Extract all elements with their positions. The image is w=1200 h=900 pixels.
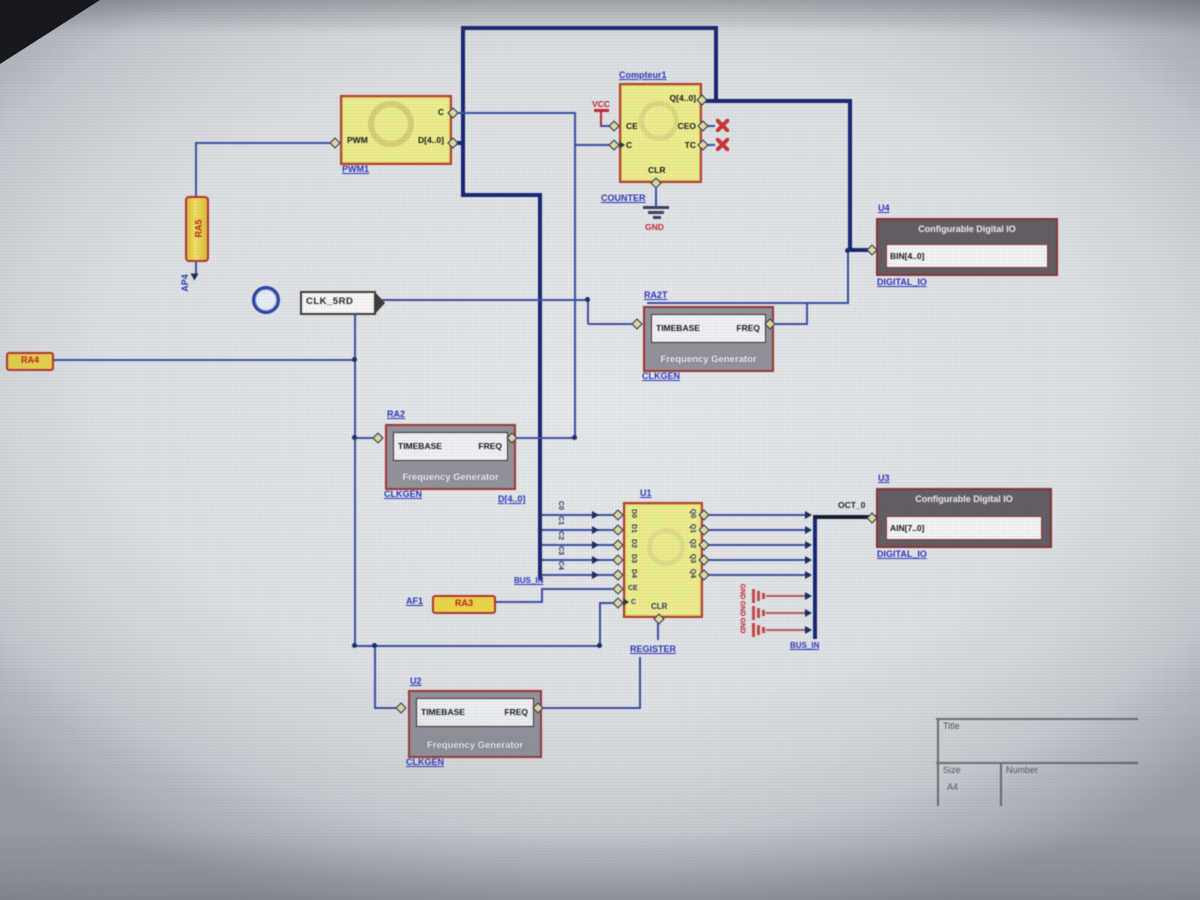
wire-segment [599,602,601,646]
pin-connector [631,318,642,329]
arrowhead [592,511,599,519]
freqgen-field: TIMEBASE FREQ [651,314,766,343]
gnd-symbol [752,589,755,603]
pin-label: TC [685,140,696,150]
wire-segment [700,514,807,516]
screen-photo: C PWM D[4..0] PWM1 Compteur1 Q[4..0] CE … [0,0,1200,900]
tap-label: C2 [556,532,565,539]
pin-label: D0 [629,510,638,517]
wire-segment [771,323,808,325]
bus-segment [813,515,817,639]
gnd-symbol [757,625,760,635]
digital-io-title: Configurable Digital IO [878,224,1056,234]
tap-label: C3 [556,547,565,554]
gnd-label: GND [645,222,664,232]
pin-connector [612,539,623,550]
pin-label: TIMEBASE [398,441,442,451]
watermark [647,528,685,566]
titleblock-size: Size [943,765,961,775]
junction-dot [372,643,377,648]
component-label: DIGITAL_IO [877,277,927,287]
arrowhead [805,626,812,634]
freqgen-field: TIMEBASE FREQ [393,432,508,461]
wire-segment [766,595,807,597]
digital-io-field[interactable]: BIN[4..0] [886,244,1048,268]
pin-label: Q2 [688,540,697,547]
titleblock-line [936,762,1138,764]
titleblock-line [936,718,1138,720]
instrument-icon[interactable] [252,286,280,314]
titleblock-size-value: A4 [947,782,958,792]
titleblock-line [1000,762,1002,806]
wire-segment [541,588,543,603]
port-tag-ra4[interactable]: RA4 [6,352,54,371]
gnd-symbol [643,206,669,209]
tap-label: C1 [556,517,565,524]
wire-segment [354,645,601,647]
arrowhead [592,556,599,564]
pin-connector [612,569,623,580]
freqgen-name: Frequency Generator [645,354,772,365]
schematic-canvas: C PWM D[4..0] PWM1 Compteur1 Q[4..0] CE … [0,0,1200,900]
pin-label: CLR [648,165,665,175]
pin-label: Q0 [688,510,697,517]
pin-connector [395,702,406,713]
wire-segment [493,601,542,603]
pin-label: FREQ [504,707,528,717]
net-label-text: AP4 [180,274,190,292]
pin-connector [608,120,619,131]
bus-field-label: AIN[7..0] [890,523,924,533]
component-ref: U1 [640,488,652,498]
pin-label: D2 [629,540,638,547]
wire-segment [700,574,807,576]
gnd-symbol [757,608,760,618]
arrowhead [805,526,812,534]
pin-connector [612,583,623,594]
junction-dot [352,643,357,648]
tap-label: C0 [556,502,565,509]
gnd-symbol [762,593,765,599]
wire-segment [766,629,807,631]
gnd-label: GND [734,605,750,612]
vcc-label: VCC [592,99,610,109]
pin-label: C [631,599,636,606]
pin-label: CLR [651,602,667,611]
pin-label: D4 [629,570,638,577]
junction-dot [352,357,357,362]
wire-segment [380,299,589,301]
wire-segment [513,437,576,439]
pin-label: D3 [629,555,638,562]
pin-label: Q[4..0] [670,93,696,103]
pin-label: FREQ [736,323,760,333]
wire-segment [700,529,807,531]
arrowhead [805,556,812,564]
component-ref: Compteur1 [619,70,667,80]
gnd-symbol [752,623,755,637]
freqgen-u2[interactable]: TIMEBASE FREQ Frequency Generator [408,690,542,758]
register-block[interactable]: D0 D1 D2 D3 D4 CE C Q0 Q1 Q2 Q3 Q4 CLR [623,502,703,618]
clk-net-tag[interactable]: CLK_5RD [300,291,376,315]
bus-label: BUS_IN [514,576,543,585]
wire-segment [354,312,356,647]
arrowhead [805,511,812,519]
pin-label: TIMEBASE [656,323,700,333]
no-connect-x [716,138,729,151]
wire-segment [542,559,618,561]
wire-segment [542,544,618,546]
pin-connector [612,524,623,535]
component-ref: RA2T [644,290,668,300]
wire-segment [542,574,618,576]
gnd-symbol [752,606,755,620]
digital-io-title: Configurable Digital IO [878,494,1050,504]
wire-segment [195,142,197,198]
freqgen-ra2[interactable]: TIMEBASE FREQ Frequency Generator [385,424,516,490]
wire-segment [196,142,336,144]
wire-segment [588,323,634,325]
pin-label: CE [628,585,638,592]
arrowhead [592,541,599,549]
component-ref: RA2 [387,409,405,419]
junction-dot [352,435,357,440]
gnd-label: GND [734,622,750,629]
bus-segment [461,193,542,197]
component-label: CLKGEN [406,757,444,767]
wire-segment [542,514,618,516]
pin-label: Q4 [688,570,697,577]
pin-connector [612,509,623,520]
pin-label: CE [626,121,638,131]
pin-connector [329,137,340,148]
gnd-symbol [762,627,765,633]
bus-segment [699,99,852,103]
wire-segment [576,144,612,146]
wire-segment [600,109,602,126]
counter-label: COUNTER [601,193,646,203]
net-label: OCT_0 [838,500,865,510]
bus-field-label: BIN[4..0] [890,251,924,261]
port-tag-ra5[interactable]: RA5 [185,196,209,262]
pin-label: TIMEBASE [421,707,465,717]
port-tag-ra3[interactable]: RA3 [432,595,496,614]
wire-segment [806,302,808,324]
bus-label: BUS_IN [790,641,819,650]
arrowhead [805,571,812,579]
clock-pin-mark [619,141,625,149]
junction-dot [597,643,602,648]
bus-segment [714,26,718,103]
pin-label: C [626,140,632,150]
arrowhead [805,592,812,600]
wire-segment [48,359,355,361]
tap-label: C4 [556,562,565,569]
titleblock-title: Title [943,721,960,731]
freqgen-name: Frequency Generator [387,472,514,483]
digital-io-u4[interactable]: Configurable Digital IO BIN[4..0] [876,218,1058,276]
pwm-block[interactable]: C PWM D[4..0] [340,95,452,165]
watermark [639,101,679,141]
component-ref: U3 [878,473,890,483]
gnd-symbol [762,610,765,616]
wire-segment [587,299,589,324]
digital-io-u3[interactable]: Configurable Digital IO AIN[7..0] [876,488,1052,548]
junction-dot [572,435,577,440]
component-ref: U2 [410,676,422,686]
pin-label: D1 [629,525,638,532]
gnd-symbol [757,591,760,601]
wire-segment [541,588,615,590]
component-label: CLKGEN [384,489,422,499]
freqgen-ra2t[interactable]: TIMEBASE FREQ Frequency Generator [643,306,774,372]
counter-block[interactable]: Q[4..0] CE C CEO TC CLR [619,83,702,183]
arrowhead [592,526,599,534]
freqgen-name: Frequency Generator [410,740,540,751]
pin-connector [612,554,623,565]
gnd-label: GND [734,588,750,595]
arrowhead [805,609,812,617]
junction-dot [585,297,590,302]
pin-label: CEO [678,121,696,131]
clk-net-label: CLK_5RD [306,296,353,307]
gnd-symbol [648,211,664,214]
clk-tag-point [374,291,385,315]
wire-segment [639,657,641,709]
digital-io-field[interactable]: AIN[7..0] [886,516,1042,540]
port-tag-label: RA4 [21,355,39,365]
titleblock-number: Number [1006,765,1038,775]
gnd-symbol [653,216,661,219]
component-label: DIGITAL_IO [877,549,927,559]
wire-segment [700,559,807,561]
pin-label: Q1 [688,525,697,532]
wire-segment [766,612,807,614]
bus-segment [538,193,542,580]
bus-label: D[4..0] [498,494,526,504]
port-tag-label: RA5 [193,219,206,237]
component-label: CLKGEN [642,371,680,381]
pin-connector [612,597,623,608]
bus-segment [848,99,852,252]
wire-segment [847,252,849,303]
wire-segment [374,645,376,709]
port-tag-label: RA3 [455,598,473,608]
arrowhead [805,541,812,549]
net-label: AP4 [176,278,194,288]
wire-segment [452,112,576,114]
pin-label: C [438,107,444,117]
watermark [368,101,414,147]
component-ref: PWM1 [342,164,369,174]
clock-pin-mark [623,598,629,606]
pin-label: D[4..0] [418,135,444,145]
component-label: REGISTER [630,644,676,654]
freqgen-field: TIMEBASE FREQ [416,698,534,727]
pin-label: FREQ [478,441,502,451]
wire-segment [542,529,618,531]
wire-segment [574,112,576,439]
wire-segment [647,302,849,304]
component-ref: U4 [878,203,890,213]
wire-segment [540,707,641,709]
pin-connector [608,139,619,150]
pin-connector [372,432,383,443]
no-connect-x [716,119,729,132]
net-label: AF1 [406,596,423,606]
junction-dot [845,248,850,253]
arrowhead [592,571,599,579]
pin-label: PWM [347,135,368,145]
pin-label: Q3 [688,555,697,562]
bus-segment [461,26,718,30]
wire-segment [700,544,807,546]
